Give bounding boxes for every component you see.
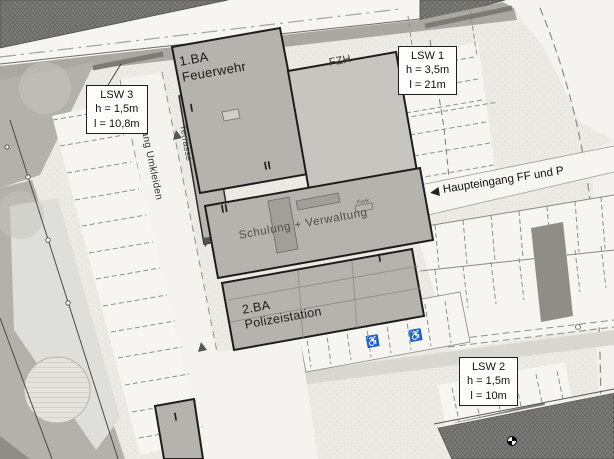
building-garage: [155, 399, 203, 459]
lsw2-id: LSW 2: [467, 360, 510, 374]
accessible-parking-icon: ♿: [365, 334, 381, 349]
lsw3-height: h = 1,5m: [94, 102, 140, 116]
survey-point: [5, 145, 9, 149]
lsw1-id: LSW 1: [406, 49, 449, 63]
lsw2-length: l = 10m: [467, 389, 510, 403]
site-plan: 1.BA Feuerwehr FZH Terrasse Zugang Umkle…: [0, 0, 614, 459]
lsw1-height: h = 3,5m: [406, 63, 449, 77]
boundary-point: [576, 325, 581, 330]
tree: [19, 62, 71, 114]
lsw3-id: LSW 3: [94, 88, 140, 102]
lsw3-length: l = 10,8m: [94, 117, 140, 131]
fence-post: [26, 175, 30, 179]
tree: [24, 357, 90, 423]
fence-post: [46, 238, 50, 242]
entrance-arrow-icon: ◀: [429, 185, 440, 198]
noise-wall-label-lsw1: LSW 1 h = 3,5m l = 21m: [398, 46, 457, 95]
noise-wall-label-lsw3: LSW 3 h = 1,5m l = 10,8m: [86, 85, 148, 134]
lsw2-height: h = 1,5m: [467, 374, 510, 388]
lsw1-length: l = 21m: [406, 78, 449, 92]
noise-wall-label-lsw2: LSW 2 h = 1,5m l = 10m: [459, 357, 518, 406]
fence-post: [66, 301, 70, 305]
accessible-parking-icon: ♿: [408, 328, 424, 343]
